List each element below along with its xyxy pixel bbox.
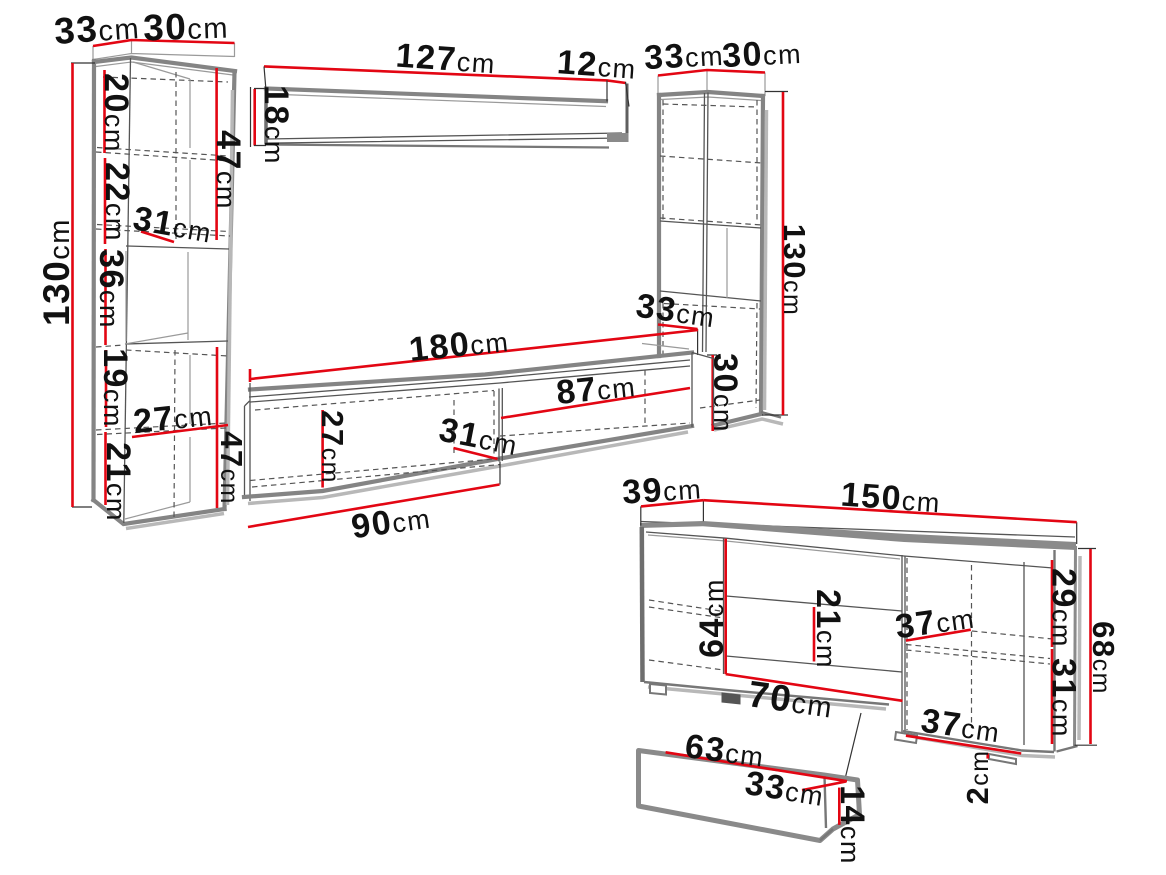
svg-text:68cm: 68cm	[1086, 621, 1121, 695]
svg-text:18cm: 18cm	[257, 85, 295, 165]
svg-text:14cm: 14cm	[833, 785, 871, 865]
svg-text:27cm: 27cm	[315, 410, 350, 484]
svg-text:21cm: 21cm	[99, 442, 137, 522]
svg-text:30cm: 30cm	[706, 353, 744, 433]
svg-text:36cm: 36cm	[92, 249, 130, 329]
svg-text:33cm: 33cm	[643, 35, 725, 77]
svg-text:47cm: 47cm	[214, 431, 249, 505]
svg-text:19cm: 19cm	[96, 348, 134, 428]
svg-text:31cm: 31cm	[1045, 658, 1083, 738]
svg-text:30cm: 30cm	[721, 33, 803, 75]
svg-text:2cm: 2cm	[960, 749, 995, 804]
svg-text:20cm: 20cm	[97, 73, 135, 153]
svg-text:64cm: 64cm	[693, 578, 731, 658]
svg-text:130cm: 130cm	[777, 224, 812, 317]
svg-text:29cm: 29cm	[1045, 568, 1083, 648]
svg-text:22cm: 22cm	[98, 162, 136, 242]
svg-text:21cm: 21cm	[809, 589, 847, 669]
svg-text:47cm: 47cm	[209, 130, 247, 210]
